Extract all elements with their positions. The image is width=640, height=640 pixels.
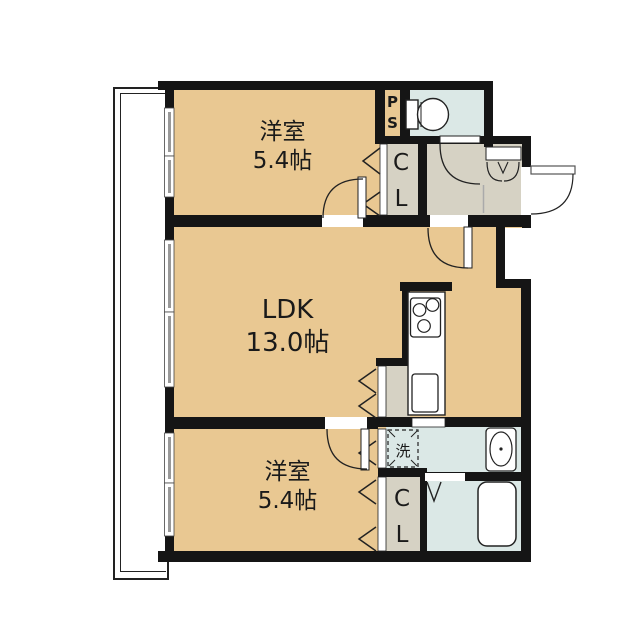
storage-door bbox=[378, 366, 386, 417]
room-size: 5.4帖 bbox=[205, 487, 370, 516]
room-name: 洋室 bbox=[200, 118, 365, 147]
laundry-label: 洗 bbox=[394, 440, 412, 461]
room-size: 5.4帖 bbox=[200, 147, 365, 176]
floor-plan: 洋室 5.4帖 LDK 13.0帖 洋室 5.4帖 C L C L P S 洗 bbox=[0, 0, 640, 640]
closet-bottom-label: C L bbox=[391, 482, 413, 553]
opening-entrance bbox=[521, 167, 532, 215]
room-size: 13.0帖 bbox=[200, 327, 375, 360]
room-label-western-top: 洋室 5.4帖 bbox=[200, 118, 365, 176]
door-arc-ldk bbox=[428, 228, 468, 268]
entrance-storage bbox=[484, 147, 522, 213]
closet-top-door bbox=[380, 144, 387, 215]
toilet-bowl bbox=[418, 99, 449, 131]
door-arc-toilet bbox=[440, 144, 480, 184]
door-leaf-toilet bbox=[440, 136, 480, 143]
room-label-western-bottom: 洋室 5.4帖 bbox=[205, 458, 370, 516]
toilet-icon bbox=[406, 99, 449, 131]
room-name: 洋室 bbox=[205, 458, 370, 487]
door-leaf-ldk bbox=[464, 227, 472, 268]
kitchen bbox=[408, 292, 445, 415]
folding-door-icon bbox=[359, 527, 376, 551]
folding-door-icon bbox=[359, 369, 376, 393]
toilet-tank bbox=[406, 100, 418, 129]
opening-room-top bbox=[322, 215, 363, 227]
bifold-door-icon bbox=[498, 162, 508, 173]
opening-ldk bbox=[430, 215, 468, 227]
door-leaf-room-top bbox=[358, 177, 366, 218]
bathroom-folding-door-icon bbox=[427, 482, 441, 501]
folding-door-icon bbox=[363, 148, 380, 174]
opening-washroom bbox=[412, 418, 445, 427]
door-arc-room-top bbox=[323, 179, 363, 218]
pipe-space-label: P S bbox=[384, 92, 401, 134]
closet-bottom-door bbox=[378, 477, 386, 551]
entrance-door-arc bbox=[531, 174, 573, 214]
opening-bathroom bbox=[425, 473, 465, 481]
folding-door-strips bbox=[378, 144, 387, 551]
windows bbox=[165, 108, 175, 536]
bathtub-icon bbox=[478, 482, 516, 546]
folding-door-icon bbox=[359, 394, 376, 418]
closet-top-label: C L bbox=[390, 146, 412, 217]
opening-room-bottom bbox=[325, 417, 367, 429]
shoe-shelf bbox=[486, 147, 521, 160]
stove-icon bbox=[411, 298, 441, 337]
entrance-door-leaf bbox=[531, 166, 575, 174]
laundry-door bbox=[378, 429, 386, 468]
room-label-ldk: LDK 13.0帖 bbox=[200, 294, 375, 359]
sink-icon bbox=[412, 374, 438, 412]
room-name: LDK bbox=[200, 294, 375, 327]
